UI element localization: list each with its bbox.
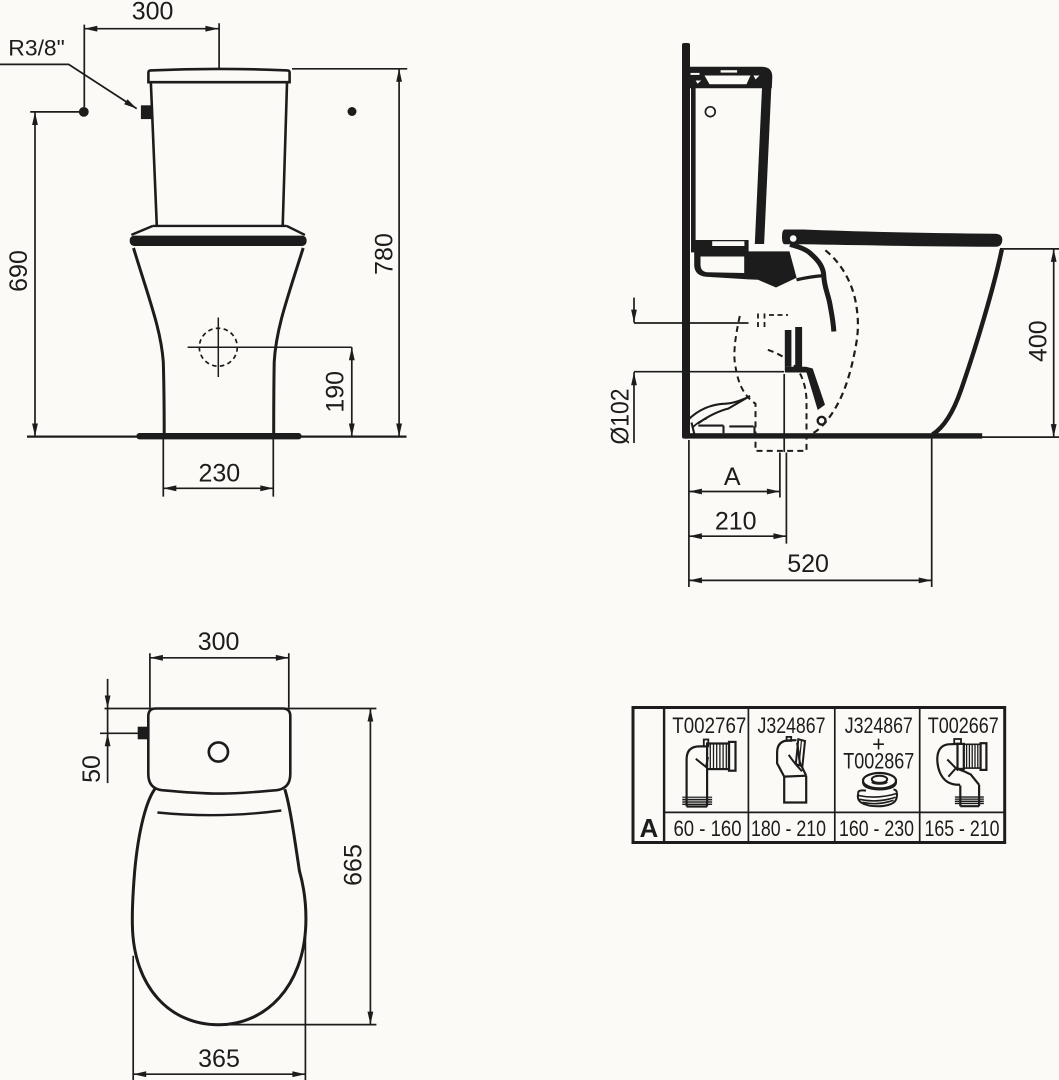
svg-text:165 - 210: 165 - 210 [925,816,1000,841]
svg-text:R3/8": R3/8" [8,36,65,61]
svg-text:160 - 230: 160 - 230 [839,816,914,841]
svg-text:365: 365 [198,1045,240,1073]
svg-text:300: 300 [198,628,240,656]
svg-text:T002767: T002767 [672,713,746,738]
svg-text:A: A [640,813,659,843]
svg-text:Ø102: Ø102 [607,389,635,445]
svg-text:665: 665 [339,844,367,886]
svg-text:180 - 210: 180 - 210 [751,816,826,841]
svg-text:A: A [724,463,741,491]
svg-text:690: 690 [5,250,33,292]
svg-text:T002867: T002867 [843,749,914,774]
svg-text:780: 780 [371,233,399,275]
svg-text:60 - 160: 60 - 160 [674,816,742,841]
svg-text:50: 50 [78,755,106,783]
svg-text:300: 300 [132,0,174,25]
svg-text:230: 230 [198,460,240,488]
svg-text:400: 400 [1024,320,1052,362]
svg-text:J324867: J324867 [758,713,826,738]
svg-text:T002667: T002667 [928,713,999,738]
svg-text:190: 190 [321,371,349,413]
svg-text:520: 520 [787,550,829,578]
svg-text:210: 210 [715,508,757,536]
